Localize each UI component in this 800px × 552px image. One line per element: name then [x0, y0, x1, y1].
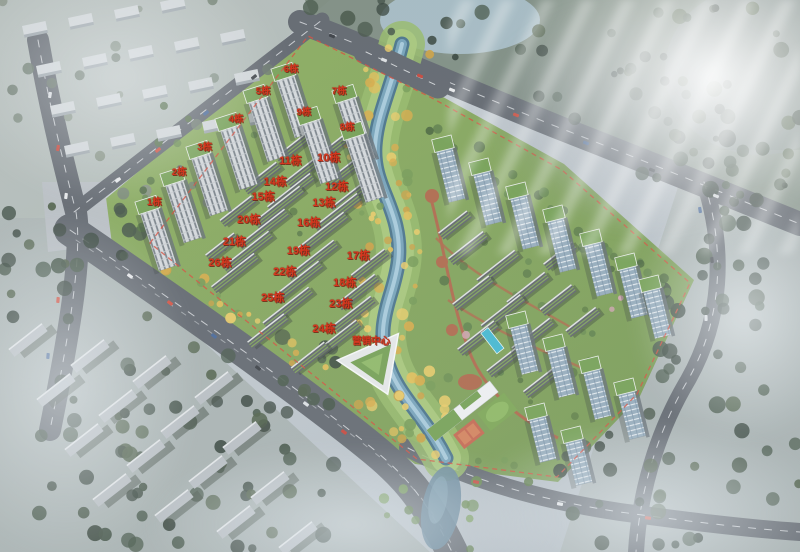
aerial-rendering: 1栋2栋3栋4栋5栋6栋7栋8栋9栋10栋11栋12栋13栋14栋15栋16栋1…: [0, 0, 800, 552]
scene-art: [0, 0, 800, 552]
